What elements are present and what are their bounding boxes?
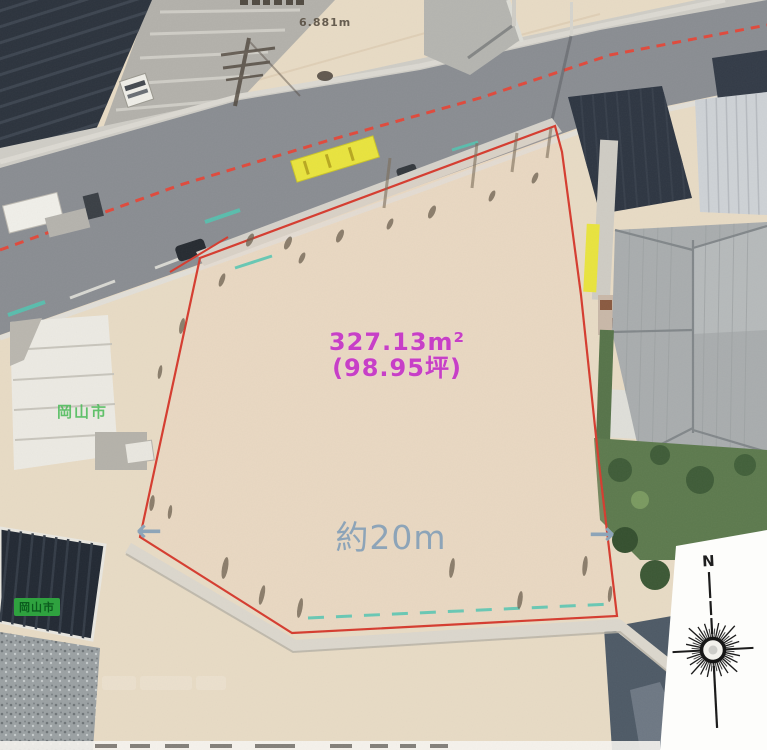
- compass-panel: N: [660, 530, 767, 750]
- map-scene: N: [0, 0, 767, 750]
- grain-overlay: [0, 0, 767, 750]
- compass-north-label: N: [702, 552, 715, 571]
- aerial-photo: N 327.13m² (98.95坪) 約20m ← → 6.881m 岡山市 …: [0, 0, 767, 750]
